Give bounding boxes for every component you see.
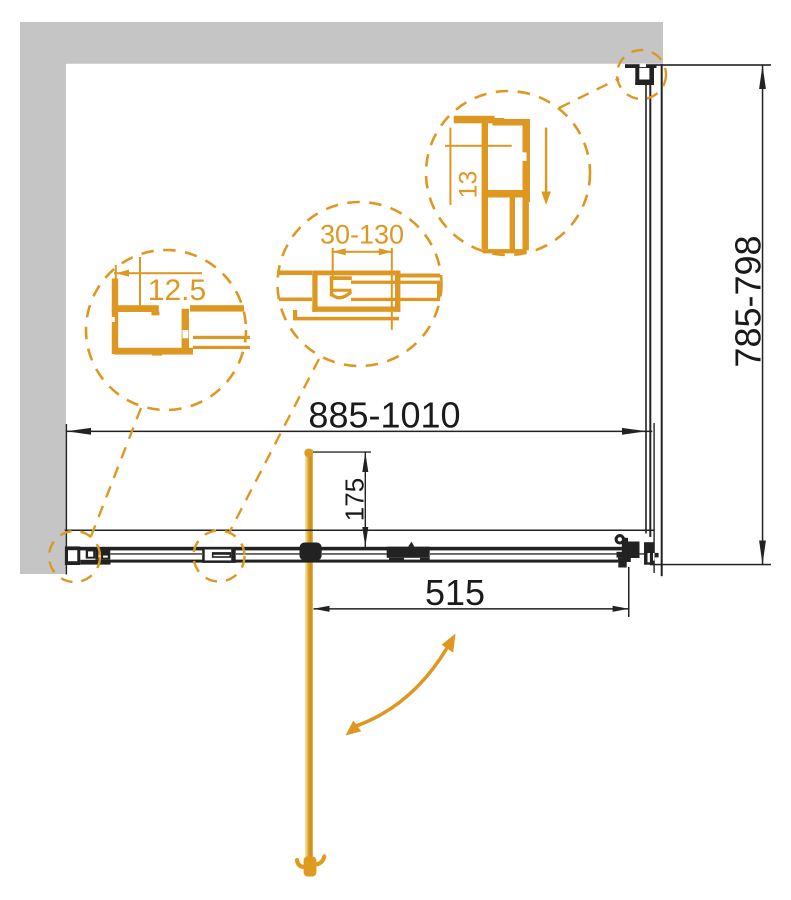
svg-text:30-130: 30-130	[320, 220, 404, 250]
svg-text:175: 175	[340, 478, 370, 521]
svg-text:515: 515	[425, 572, 485, 613]
svg-text:785-798: 785-798	[728, 235, 769, 367]
svg-text:12.5: 12.5	[148, 274, 206, 307]
svg-text:885-1010: 885-1010	[308, 395, 460, 436]
svg-text:13: 13	[455, 171, 483, 199]
